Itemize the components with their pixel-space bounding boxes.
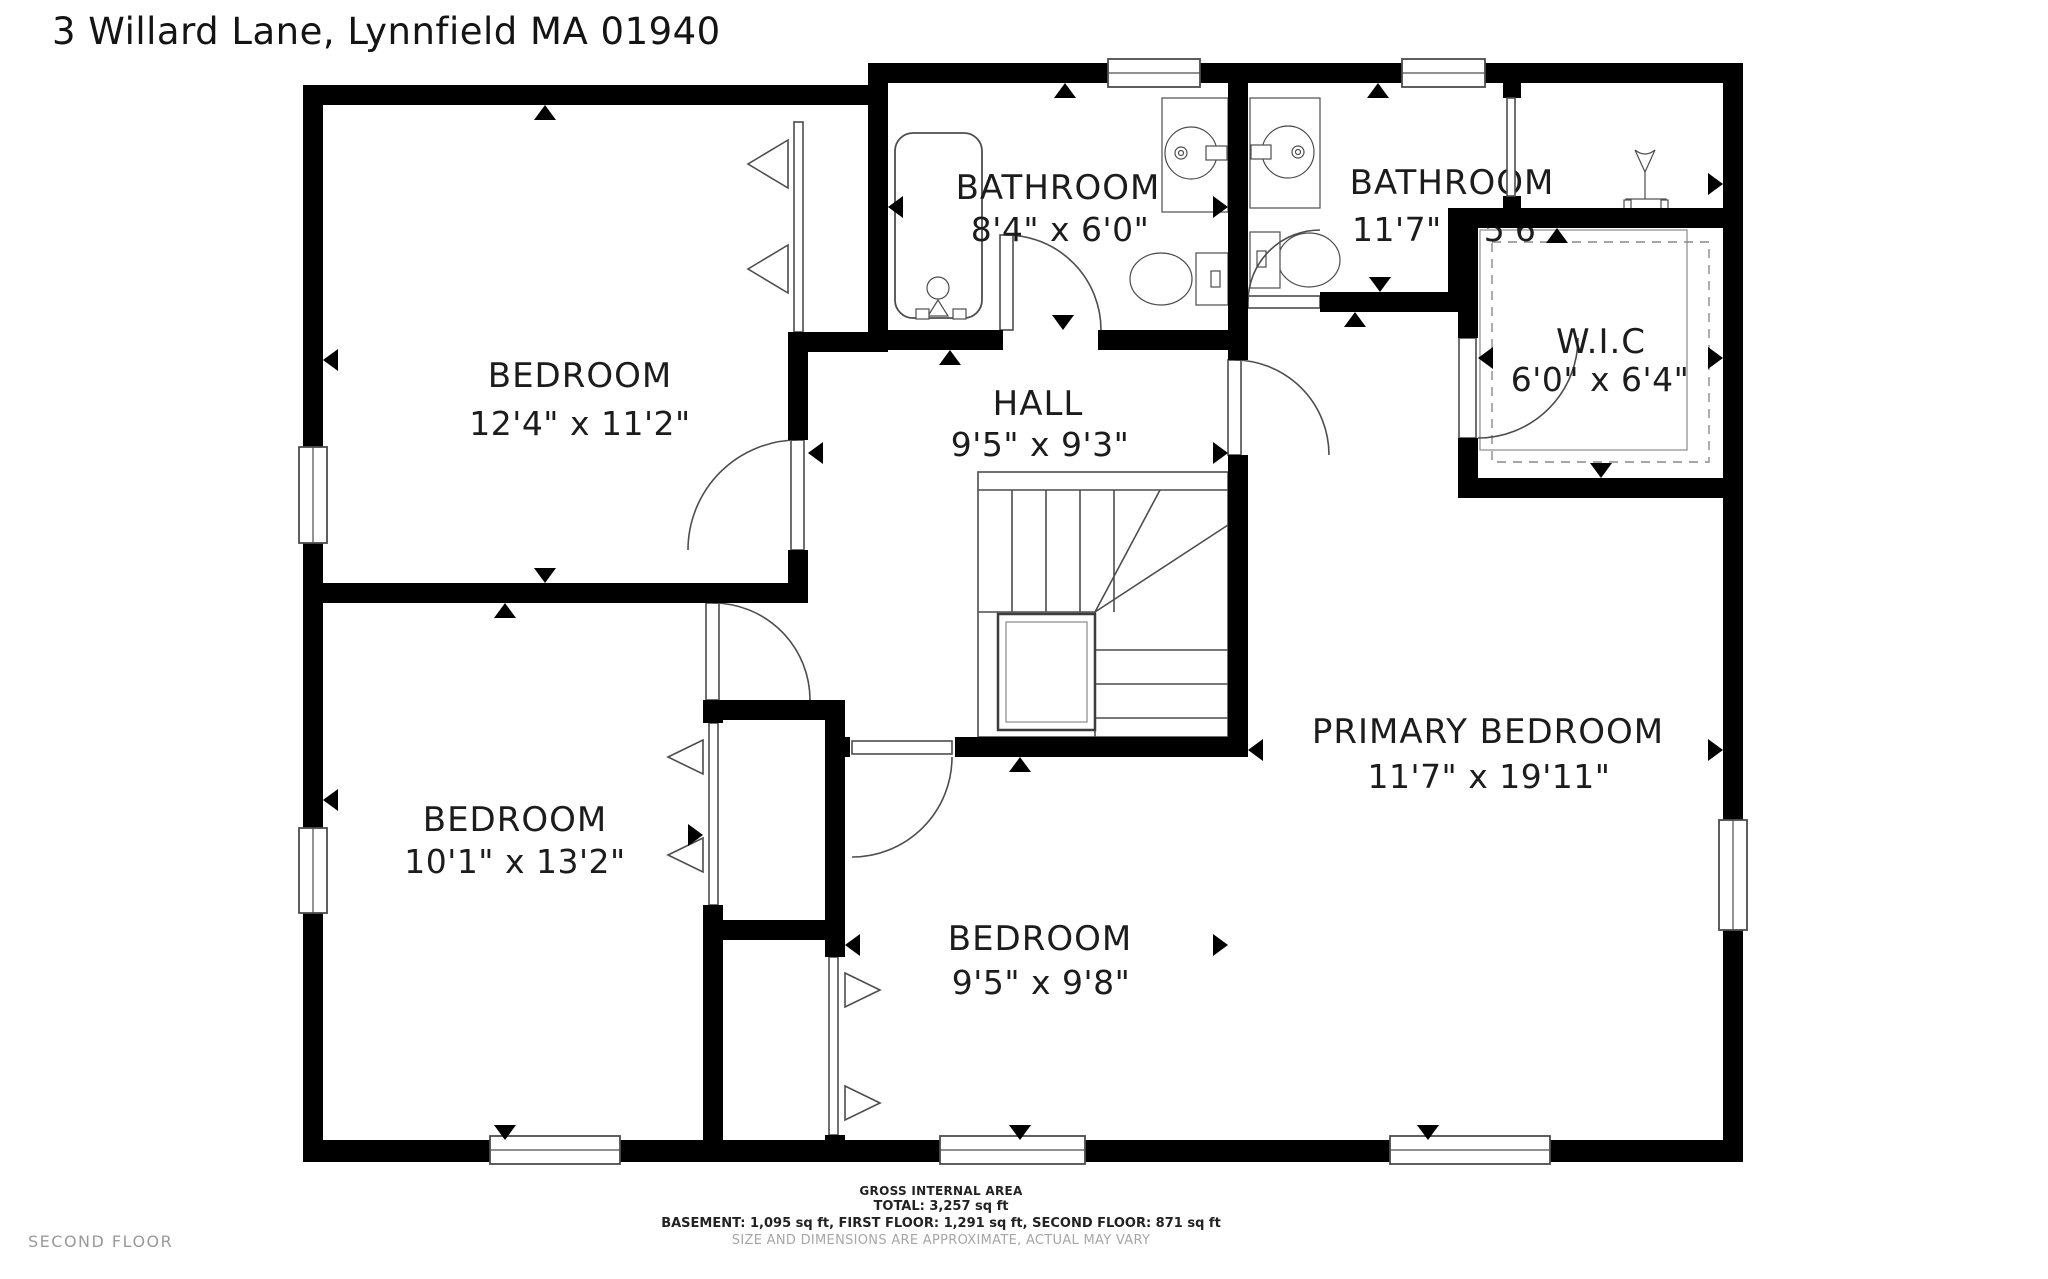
window [1719,820,1747,930]
door-primary-bedroom [1228,360,1329,455]
sink-vanity-hall-bathroom [1162,98,1228,212]
room-label-bathroom-primary: BATHROOM [1350,163,1555,203]
window [490,1136,620,1164]
toilet-primary-bathroom [1250,232,1340,288]
window [1390,1136,1550,1164]
window [940,1136,1085,1164]
staircase [978,472,1228,737]
sink-vanity-primary-bathroom [1250,98,1320,208]
floor-label: SECOND FLOOR [28,1232,173,1251]
gross-area-heading: GROSS INTERNAL AREA [0,1184,1882,1199]
room-label-wic: W.I.C [1556,322,1646,362]
floorplan-svg: BEDROOM 12'4" x 11'2" BATHROOM 8'4" x 6'… [0,0,2048,1279]
room-dims-bedroom-top-left: 12'4" x 11'2" [469,404,690,443]
radiator [1624,150,1668,211]
room-label-bedroom-bottom-left: BEDROOM [423,800,607,840]
stair-void [998,614,1095,730]
room-dims-bathroom-hall: 8'4" x 6'0" [971,210,1150,249]
room-dims-primary-bedroom: 11'7" x 19'11" [1368,757,1611,796]
room-label-primary-bedroom: PRIMARY BEDROOM [1312,712,1664,752]
area-breakdown: BASEMENT: 1,095 sq ft, FIRST FLOOR: 1,29… [0,1216,1882,1233]
door-bedroom-top-left [688,440,804,550]
door-hall-bathroom [1000,235,1101,330]
floorplan-page: 3 Willard Lane, Lynnfield MA 01940 [0,0,2048,1279]
room-label-bedroom-bottom-middle: BEDROOM [948,919,1132,959]
window [299,447,327,543]
closet-bifold-top-left-bedroom [748,122,803,332]
room-label-bedroom-top-left: BEDROOM [488,356,672,396]
window [299,828,327,913]
room-label-hall: HALL [993,384,1084,424]
total-area: TOTAL: 3,257 sq ft [0,1199,1882,1216]
window [1108,59,1200,87]
bathtub [895,133,982,319]
room-dims-bedroom-bottom-left: 10'1" x 13'2" [404,842,625,881]
room-dims-wic: 6'0" x 6'4" [1511,360,1690,399]
closet-bifold-bottom-left-bedroom [668,723,718,905]
area-disclaimer: SIZE AND DIMENSIONS ARE APPROXIMATE, ACT… [0,1233,1882,1250]
area-summary: GROSS INTERNAL AREA TOTAL: 3,257 sq ft B… [0,1184,1882,1249]
toilet-hall-bathroom [1130,253,1228,305]
room-dims-bedroom-bottom-middle: 9'5" x 9'8" [952,963,1131,1002]
shower-partition [1507,98,1515,196]
closet-bifold-bottom-middle-bedroom [829,957,880,1135]
door-bedroom-bottom-left [706,603,810,700]
room-dims-hall: 9'5" x 9'3" [951,425,1130,464]
door-bedroom-bottom-middle [852,741,952,857]
window [1402,59,1485,87]
room-label-bathroom-hall: BATHROOM [956,168,1161,208]
